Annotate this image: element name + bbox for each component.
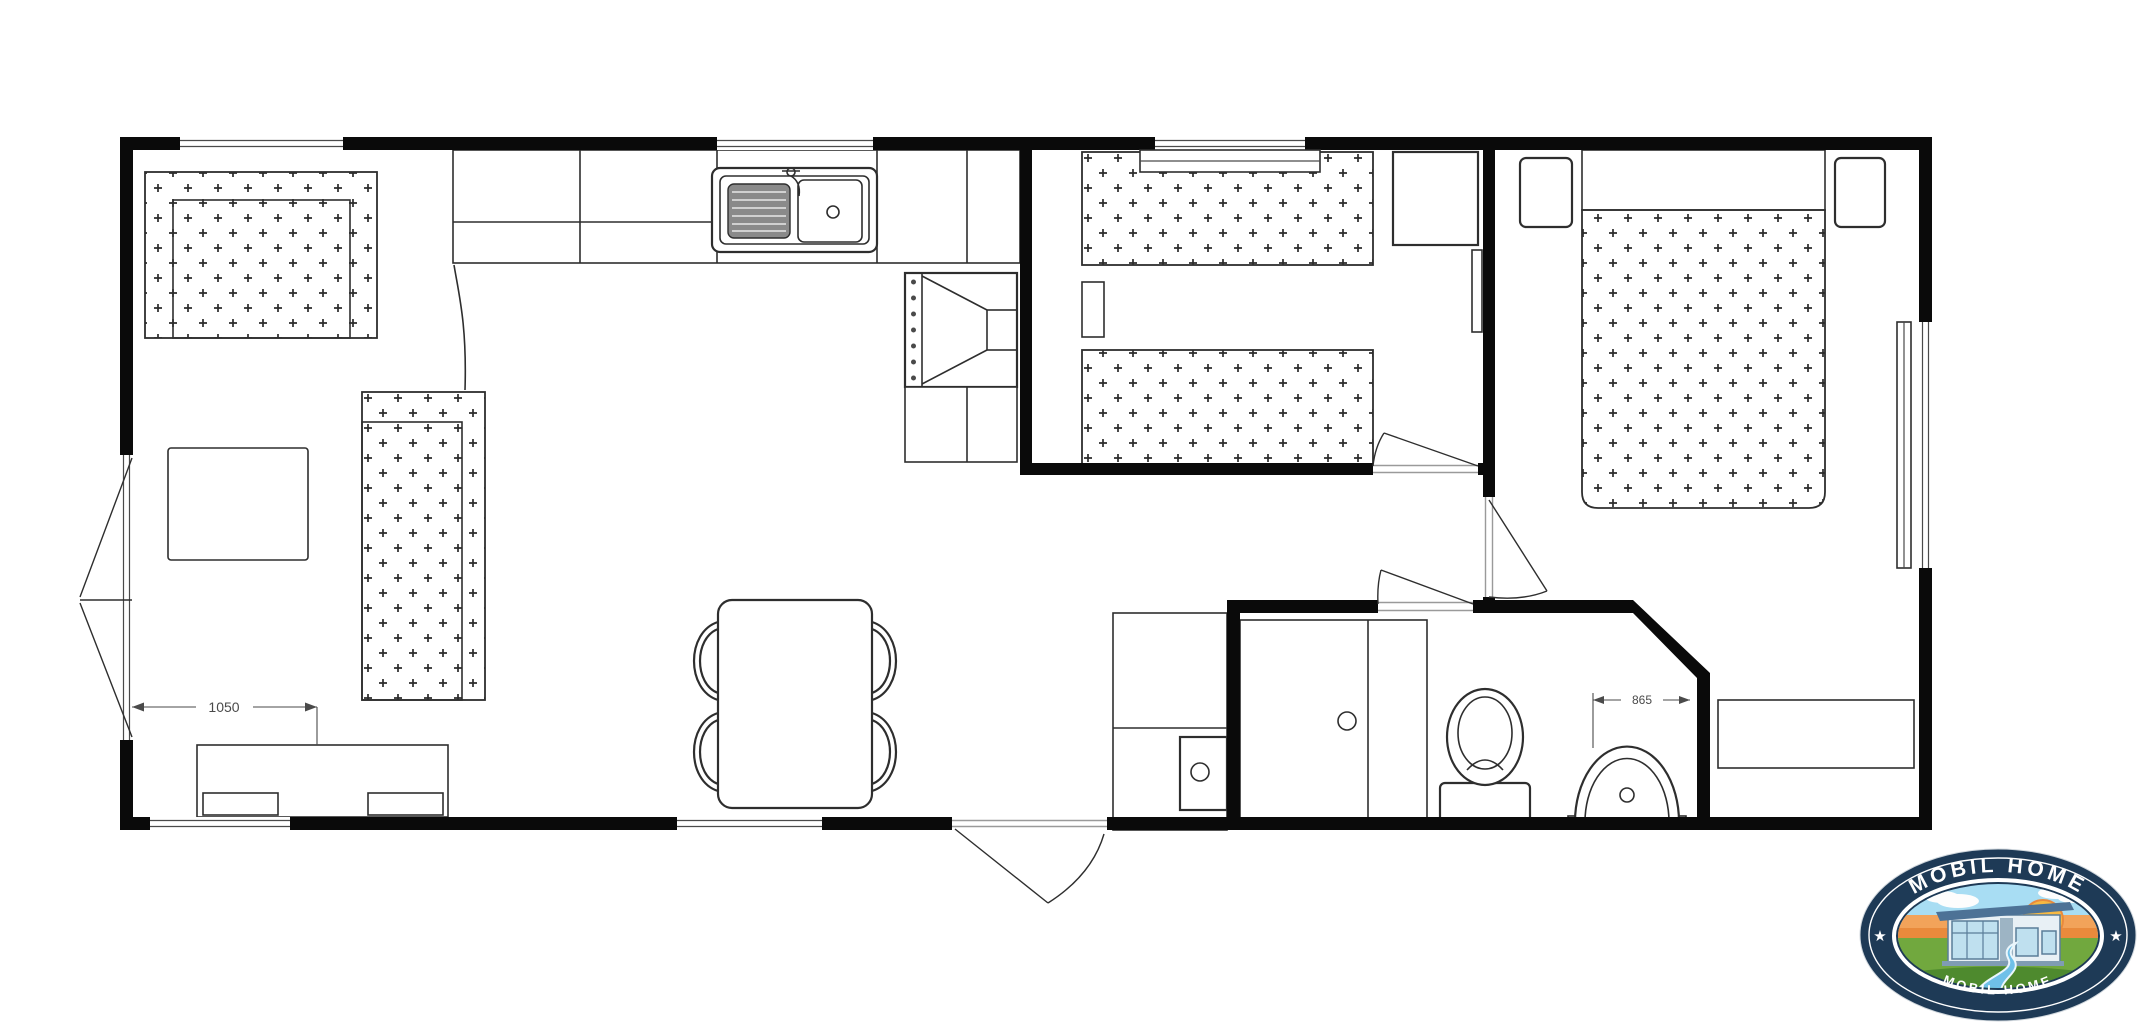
dimension-label-living: 1050: [208, 699, 239, 715]
toilet: [1440, 689, 1530, 825]
wall-bedroom-divider: [1483, 137, 1495, 497]
doorway-bathroom: [1378, 600, 1473, 613]
sofa-large: [145, 172, 377, 338]
double-bed: [1582, 210, 1825, 508]
floor-plan-screenshot: 865: [0, 0, 2144, 1024]
wall-kitchen-bedroom: [1020, 137, 1032, 475]
wall-bathroom-left-top: [1233, 600, 1378, 613]
bedroom-bench: [1718, 700, 1914, 768]
shower: [1240, 620, 1427, 825]
french-door-opening: [120, 455, 133, 740]
entrance-door: [955, 829, 1104, 903]
window-right: [1919, 322, 1932, 568]
twin-nightstand: [1082, 282, 1104, 337]
dimension-label-bathroom: 865: [1632, 693, 1652, 707]
water-heater: [1180, 737, 1227, 810]
tv-cabinet: [197, 745, 448, 817]
twin-bed-2: [1082, 350, 1373, 465]
wardrobe: [1393, 152, 1478, 245]
sofa-small: [362, 392, 485, 700]
nightstand-right: [1835, 158, 1885, 227]
floor-plan-svg: 865: [0, 0, 2144, 1024]
doorway-bedroom-twin: [1373, 463, 1478, 475]
fridge-unit: [905, 273, 1017, 387]
nightstand-left: [1520, 158, 1572, 227]
sink-basin: [798, 180, 862, 242]
doorway-bedroom-master: [1483, 497, 1495, 597]
dining-area: [694, 600, 896, 808]
window-top-bedroom: [1140, 137, 1320, 172]
coffee-table: [168, 448, 308, 560]
logo-window-large: [1952, 921, 1998, 959]
mobil-home-logo: MOBIL HOME MOBIL HOME ★ ★: [1860, 849, 2136, 1021]
right-window-panel: [1897, 322, 1911, 568]
entrance-opening: [952, 817, 1107, 830]
logo-star-right: ★: [2109, 927, 2122, 945]
wall-mirror: [1472, 250, 1482, 332]
window-top-kitchen: [717, 137, 873, 150]
wall-bathroom-left: [1227, 600, 1240, 830]
window-top-living: [180, 137, 343, 150]
window-bottom-dining: [677, 817, 822, 830]
kitchen-sink: [712, 168, 877, 252]
headboard: [1582, 150, 1825, 210]
wall-bathroom-right-top: [1473, 600, 1633, 613]
logo-house: [1936, 902, 2074, 966]
utility-cupboard: [1113, 613, 1227, 830]
window-bottom-left: [150, 817, 290, 830]
dining-table: [718, 600, 872, 808]
kitchen-lower-cabinet: [905, 387, 1017, 462]
logo-star-left: ★: [1873, 927, 1886, 945]
wall-bedroom-hall: [1020, 463, 1373, 475]
